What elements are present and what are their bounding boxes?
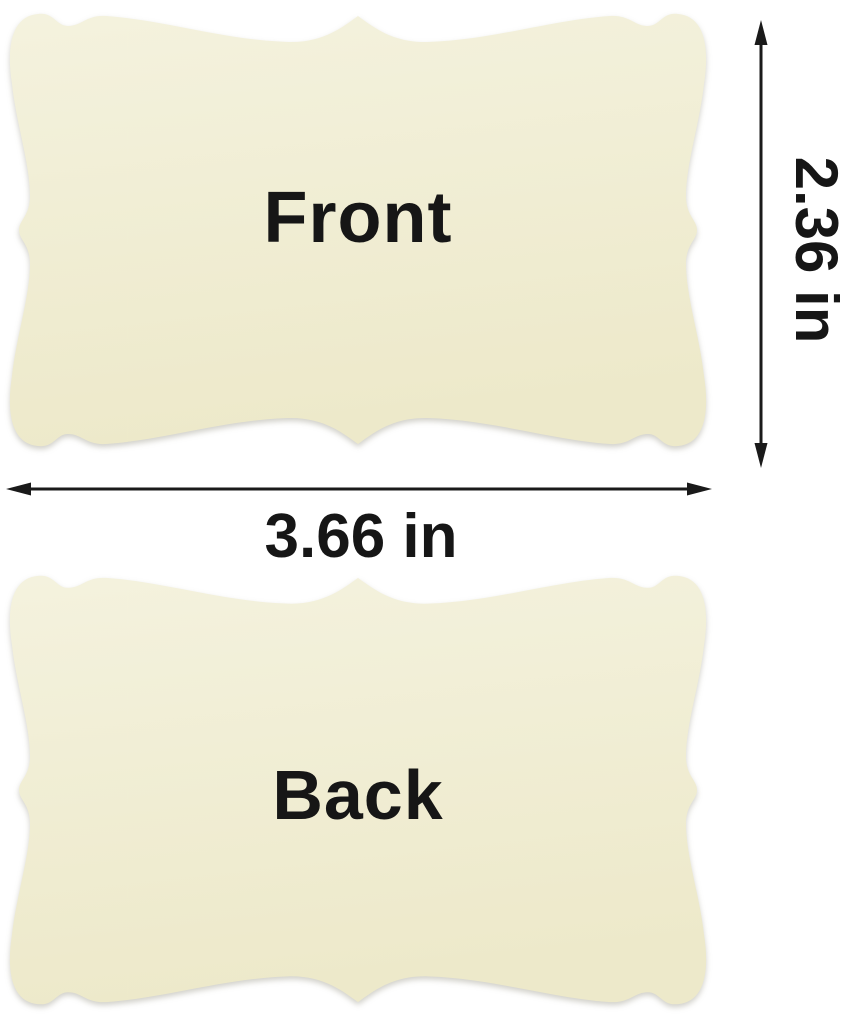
height-arrow-up-head-icon: [755, 20, 768, 45]
height-arrow-down-head-icon: [755, 443, 768, 468]
height-dimension-arrow: [745, 18, 777, 470]
height-dimension-label: 2.36 in: [784, 120, 848, 380]
width-dimension-arrow: [4, 473, 714, 505]
width-dimension-label: 3.66 in: [4, 506, 718, 568]
width-arrow-left-head-icon: [6, 483, 31, 496]
back-card-label: Back: [4, 760, 712, 830]
width-arrow-right-head-icon: [687, 483, 712, 496]
product-dimension-diagram: Front 2.36 in 3.66 in Back: [0, 0, 848, 1022]
front-card-label: Front: [4, 182, 712, 254]
